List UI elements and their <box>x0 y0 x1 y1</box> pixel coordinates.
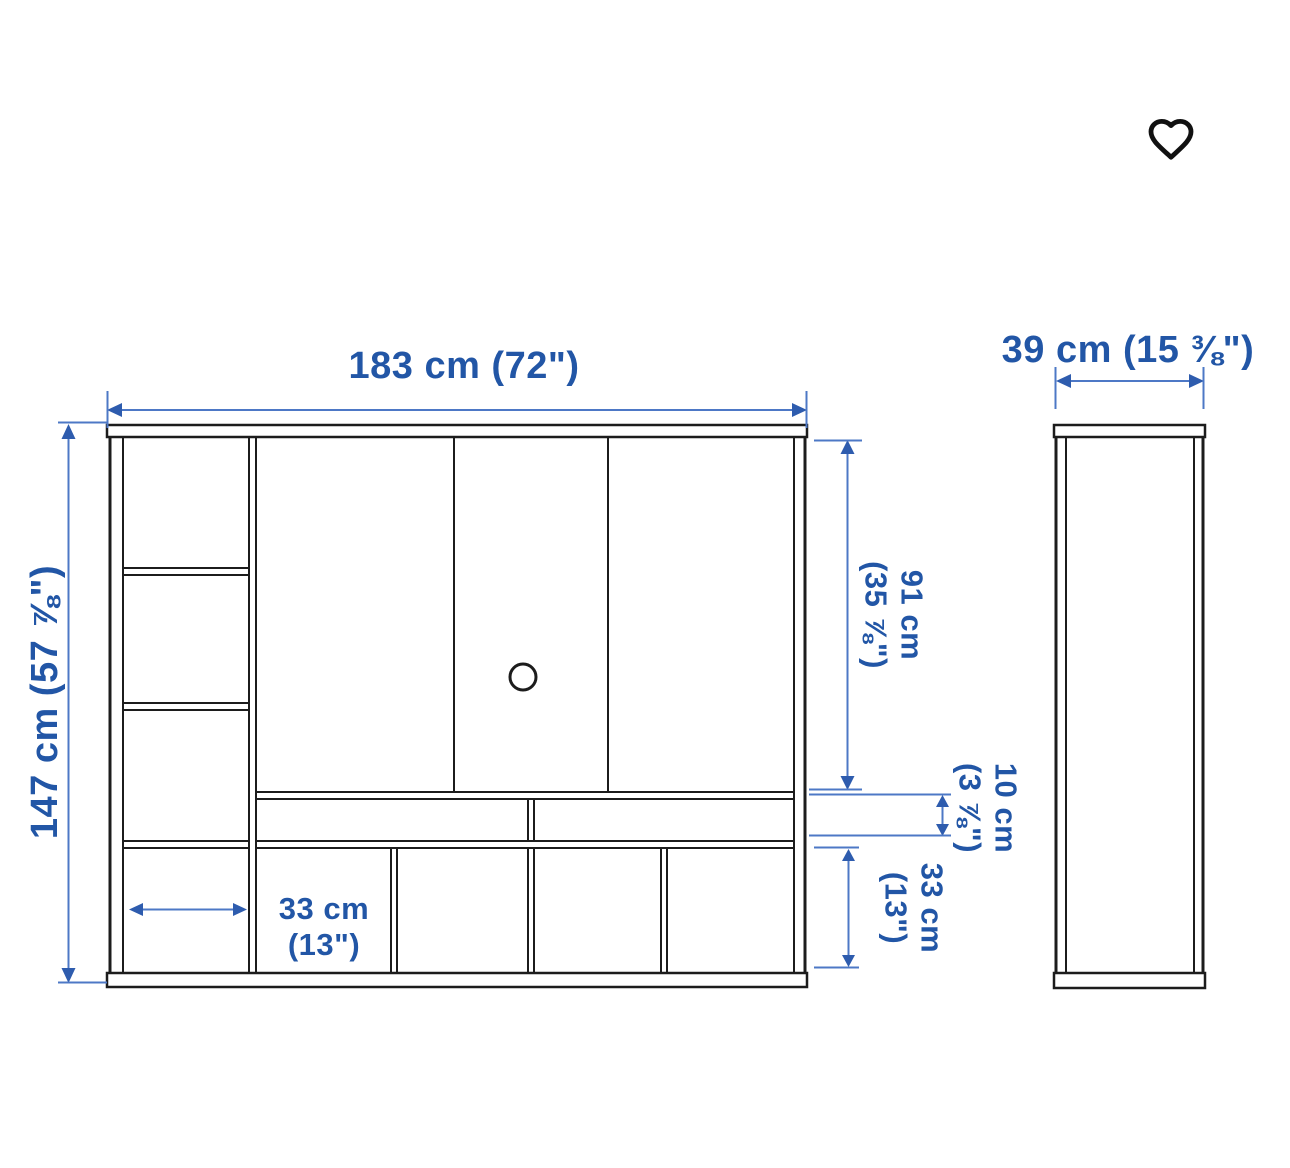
arrowhead-down <box>841 776 855 790</box>
dimension-value: 33 cm <box>914 863 950 953</box>
arrowhead-up <box>842 849 855 861</box>
drawer-section-dimension-label: 10 cm (3 ⅞") <box>952 763 1023 853</box>
door-knob <box>510 664 536 690</box>
height-dimension-label: 147 cm (57 ⅞") <box>24 565 68 839</box>
arrowhead-right <box>792 403 807 417</box>
arrowhead-right <box>1189 374 1204 388</box>
dimension-value: (13") <box>878 863 914 953</box>
arrowhead-down <box>62 968 76 983</box>
dimension-value: (13") <box>258 927 390 963</box>
dimension-value: 33 cm <box>258 891 390 927</box>
arrowhead-up <box>62 424 76 439</box>
width-dimension-label: 183 cm (72") <box>348 345 579 389</box>
lower-section-dimension-label: 33 cm (13") <box>878 863 949 953</box>
side-top-panel <box>1054 425 1205 437</box>
compartment-width-dimension-label: 33 cm (13") <box>258 891 390 962</box>
product-dimensions-page: 183 cm (72") 39 cm (15 ⅜") 147 cm (57 ⅞"… <box>0 0 1290 1168</box>
front-bottom-plinth <box>107 973 807 987</box>
dimension-value: (35 ⅞") <box>858 561 894 669</box>
arrowhead-left <box>129 903 143 916</box>
upper-section-dimension-label: 91 cm (35 ⅞") <box>858 561 929 669</box>
arrowhead-down <box>842 955 855 967</box>
dimension-value: (3 ⅞") <box>952 763 988 853</box>
side-bottom-plinth <box>1054 973 1205 988</box>
dimension-drawing <box>0 0 1290 1168</box>
arrowhead-right <box>233 903 247 916</box>
depth-dimension-label: 39 cm (15 ⅜") <box>1002 329 1255 373</box>
arrowhead-down <box>936 824 949 836</box>
side-view-drawing <box>1054 425 1205 988</box>
front-view-drawing <box>107 425 807 987</box>
arrowhead-left <box>1056 374 1071 388</box>
arrowhead-up <box>936 795 949 807</box>
arrowhead-up <box>841 440 855 454</box>
dimension-lines <box>58 367 1204 983</box>
dimension-value: 10 cm <box>988 763 1024 853</box>
dimension-value: 91 cm <box>894 561 930 669</box>
arrowhead-left <box>107 403 122 417</box>
front-top-panel <box>107 425 807 437</box>
